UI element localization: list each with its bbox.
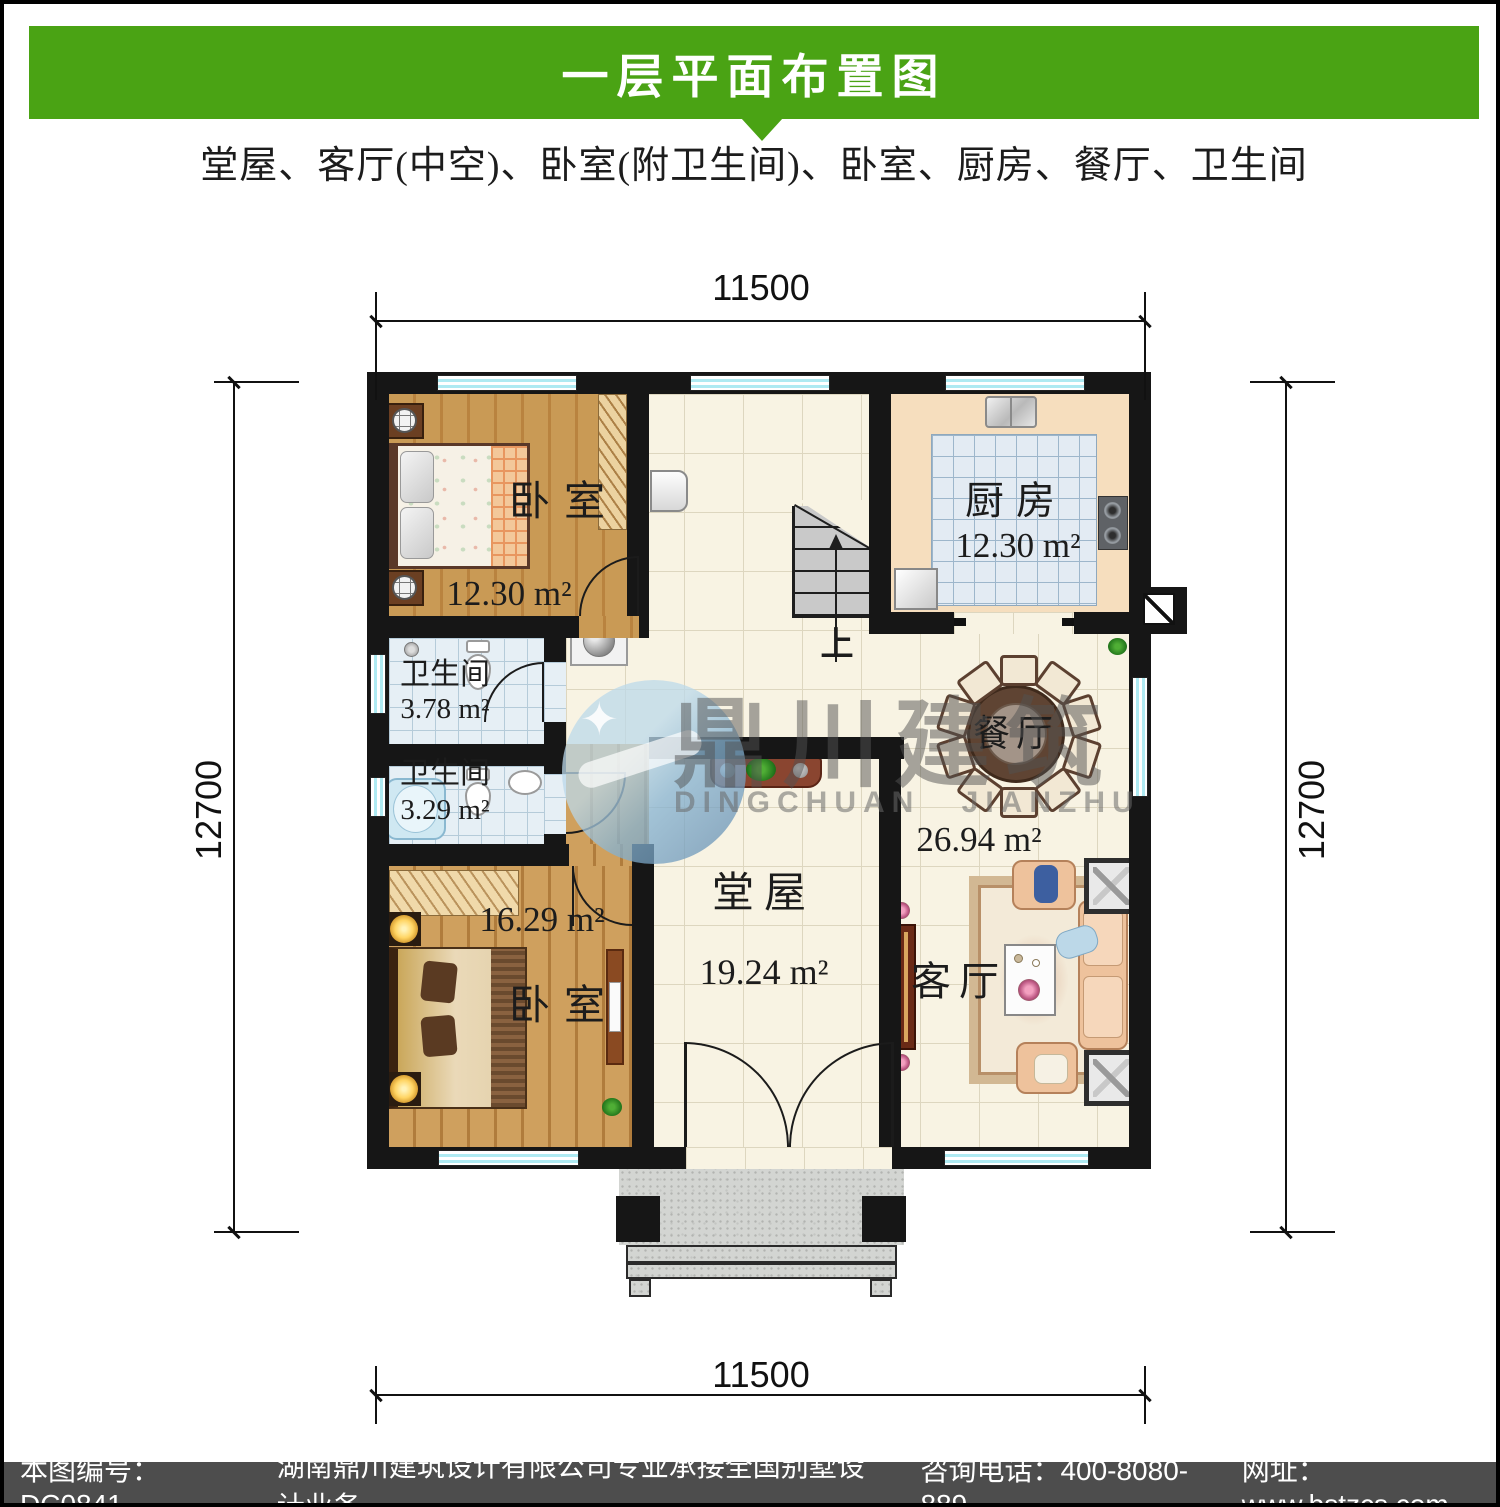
wall-left bbox=[367, 372, 389, 1169]
window bbox=[438, 1150, 579, 1166]
bedroom2-label: 卧室 bbox=[484, 984, 644, 1027]
kitchen-label: 厨房 bbox=[936, 482, 1096, 523]
porch-foot bbox=[629, 1279, 651, 1297]
watermark-text-en: DINGCHUAN JIANZHU bbox=[674, 786, 1194, 820]
door-gap bbox=[954, 612, 1074, 634]
dining-area: 26.94 m² bbox=[889, 822, 1069, 859]
toilet-icon bbox=[466, 640, 490, 653]
kitchen-area: 12.30 m² bbox=[928, 528, 1108, 565]
flue-symbol-icon bbox=[1143, 593, 1175, 625]
dim-ext-top-left bbox=[375, 292, 377, 400]
kitchen-sink-divider bbox=[1010, 398, 1012, 426]
bath1-label: 卫生间 bbox=[390, 659, 500, 691]
door-gap bbox=[544, 662, 566, 722]
dim-top-label: 11500 bbox=[691, 267, 831, 309]
window bbox=[370, 777, 386, 817]
footer-phone: 咨询电话：400-8080-889 bbox=[920, 1449, 1203, 1507]
living-label: 客厅 bbox=[879, 961, 1039, 1003]
dim-ext-right-bottom bbox=[1250, 1231, 1335, 1233]
footer-code: 本图编号：DC0841 bbox=[20, 1449, 239, 1507]
header-bar: 一层平面布置图 bbox=[29, 26, 1479, 119]
bath2-area: 3.29 m² bbox=[390, 795, 500, 825]
floor-plan-page: 一层平面布置图 堂屋、客厅(中空)、卧室(附卫生间)、卧室、厨房、餐厅、卫生间 … bbox=[0, 0, 1500, 1507]
sofa-cushion bbox=[1083, 976, 1123, 1038]
chair bbox=[1000, 655, 1038, 686]
bath2-label: 卫生间 bbox=[390, 758, 500, 790]
lamp-glow-icon bbox=[390, 915, 418, 943]
pillow bbox=[420, 960, 458, 1003]
bedroom1-label: 卧室 bbox=[484, 480, 644, 523]
dim-ext-left-top bbox=[214, 381, 299, 383]
armchair-cushion bbox=[1034, 1054, 1068, 1084]
bed-blanket bbox=[491, 949, 525, 1107]
hall-area: 19.24 m² bbox=[674, 954, 854, 992]
footer-company: 湖南鼎川建筑设计有限公司专业承接全国别墅设计业务 bbox=[277, 1445, 883, 1507]
header-pointer-icon bbox=[741, 118, 783, 141]
dim-ext-top-right bbox=[1144, 292, 1146, 400]
window bbox=[945, 375, 1085, 391]
sliding-door-mark bbox=[1062, 618, 1074, 626]
porch-step bbox=[626, 1263, 897, 1279]
stairs-up-label: 上 bbox=[817, 628, 857, 663]
door-leaf bbox=[542, 662, 544, 722]
footer-website: 网址：www.bstzcs.com bbox=[1242, 1449, 1500, 1507]
window bbox=[370, 654, 386, 714]
bedroom1-area: 12.30 m² bbox=[419, 576, 599, 613]
porch-column bbox=[862, 1196, 906, 1242]
porch-column bbox=[616, 1196, 660, 1242]
entrance-gap bbox=[686, 1147, 892, 1169]
dim-line-top bbox=[376, 320, 1146, 322]
window bbox=[437, 375, 577, 391]
pillow bbox=[420, 1015, 457, 1058]
subtitle: 堂屋、客厅(中空)、卧室(附卫生间)、卧室、厨房、餐厅、卫生间 bbox=[4, 147, 1500, 187]
burner-icon bbox=[1104, 502, 1121, 519]
plant-icon bbox=[1108, 638, 1127, 655]
person bbox=[1034, 865, 1058, 903]
lamp-icon bbox=[392, 575, 417, 600]
fridge bbox=[894, 568, 938, 610]
bedroom2-area: 16.29 m² bbox=[452, 902, 632, 939]
pillow bbox=[400, 451, 434, 503]
watermark-star-icon: ✦ bbox=[580, 692, 619, 746]
porch-foot bbox=[870, 1279, 892, 1297]
porch-step bbox=[626, 1245, 897, 1263]
entrance-door-leaf bbox=[891, 1042, 894, 1147]
entrance-door-leaf bbox=[684, 1042, 687, 1147]
watermark-text-zh: 鼎川建筑 bbox=[672, 696, 1192, 793]
door-gap bbox=[579, 616, 639, 638]
footer-bar: 本图编号：DC0841 湖南鼎川建筑设计有限公司专业承接全国别墅设计业务 咨询电… bbox=[4, 1462, 1500, 1507]
plant-icon bbox=[602, 1098, 622, 1116]
hall-label: 堂屋 bbox=[684, 872, 844, 916]
sliding-door-mark bbox=[954, 618, 966, 626]
sink-icon bbox=[508, 770, 542, 795]
dim-left-label: 12700 bbox=[188, 740, 230, 880]
dim-ext-left-bottom bbox=[214, 1231, 299, 1233]
dim-line-left bbox=[233, 382, 235, 1232]
dim-bottom-label: 11500 bbox=[691, 1354, 831, 1396]
bath1-area: 3.78 m² bbox=[390, 694, 500, 724]
pillow bbox=[400, 507, 434, 559]
page-title: 一层平面布置图 bbox=[562, 38, 947, 107]
dim-ext-right-top bbox=[1250, 381, 1335, 383]
shower-icon bbox=[404, 642, 419, 657]
window bbox=[690, 375, 830, 391]
stairs-arrow-head-icon bbox=[829, 534, 843, 549]
window bbox=[944, 1150, 1089, 1166]
door-leaf bbox=[637, 556, 639, 616]
lamp-icon bbox=[392, 408, 417, 433]
wall-kitchen-west bbox=[869, 372, 891, 634]
dim-line-right bbox=[1285, 382, 1287, 1232]
lamp-glow-icon bbox=[390, 1075, 418, 1103]
water-heater bbox=[650, 470, 688, 512]
dim-right-label: 12700 bbox=[1291, 740, 1333, 880]
